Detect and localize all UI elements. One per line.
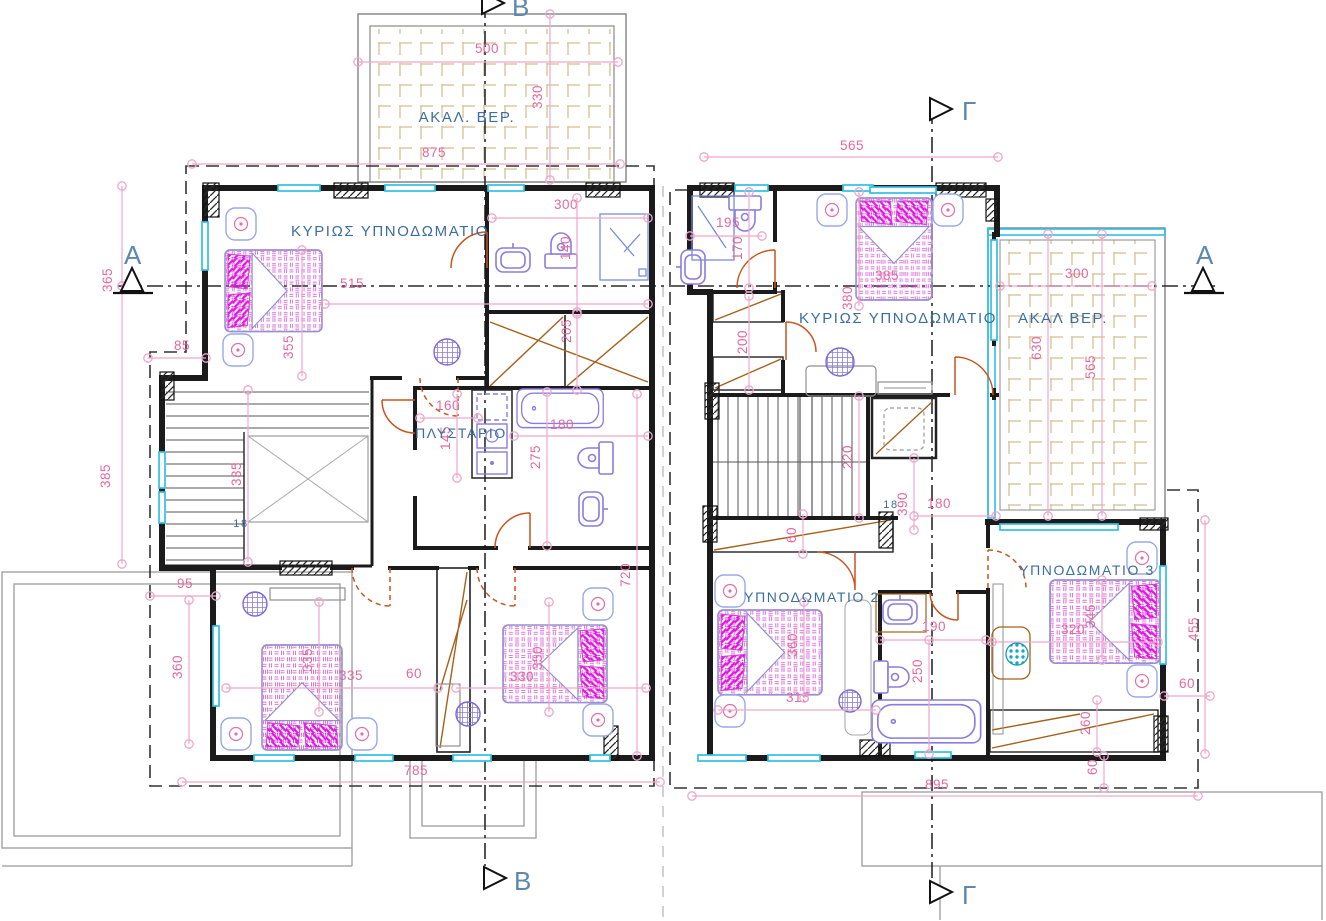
- dimension-label: 895: [925, 777, 949, 792]
- door-bedroom-southwest: [352, 568, 390, 606]
- section-letter: Γ: [962, 880, 976, 910]
- nightstand: [347, 718, 377, 750]
- section-marker-triangle: [930, 881, 952, 903]
- dimension-label: 260: [1078, 711, 1093, 735]
- section-marker-triangle: [121, 268, 143, 291]
- section-marker-triangle: [484, 867, 506, 889]
- dimension-label: 500: [475, 41, 499, 56]
- section-letter: A: [124, 240, 142, 270]
- dimension-label: 250: [910, 659, 925, 683]
- dimension-label: 355: [281, 335, 296, 359]
- room-label: ΚΥΡΙΩΣ ΥΠΝΟΔΩΜΑΤΙΟ: [291, 223, 489, 240]
- desk-chair-bedroom-southmid: [436, 684, 480, 746]
- dimension-label: 360: [170, 655, 185, 679]
- nightstand: [226, 208, 256, 240]
- section-letter: A: [1196, 240, 1214, 270]
- nightstand: [817, 194, 847, 226]
- door-bath-2-left: [495, 513, 530, 548]
- dimension-label: 300: [554, 197, 578, 212]
- floor-plan-screenshot: 5003308755655153553653858533530014020519…: [0, 0, 1326, 921]
- nightstand: [583, 588, 613, 620]
- sink: [579, 492, 608, 526]
- dimension-label: 630: [1029, 336, 1044, 360]
- nightstand: [223, 334, 253, 366]
- bed-master-left: [225, 250, 322, 332]
- dimension-label: 200: [735, 330, 750, 354]
- door-bath-2-right: [930, 592, 958, 620]
- desk-chair-master-right: [806, 348, 932, 396]
- nightstand: [1127, 665, 1157, 697]
- bed-master-right: [856, 198, 932, 300]
- door-bedroom-southmid: [477, 568, 515, 606]
- dimension-label: 330: [530, 85, 545, 109]
- room-label: 18: [233, 518, 248, 530]
- chair-bedroom-3: [992, 584, 1030, 734]
- dimension-label: 565: [840, 138, 864, 153]
- stair-void-room: [872, 398, 936, 458]
- dimension-label: 345: [1083, 604, 1098, 628]
- dimension-label: 220: [840, 445, 855, 469]
- dimension-label: 315: [786, 690, 810, 705]
- toilet: [578, 442, 613, 474]
- section-marker-triangle: [1192, 268, 1214, 291]
- dimension-label: 320: [1061, 622, 1085, 637]
- dimension-label: 190: [922, 619, 946, 634]
- dimension-label: 195: [716, 215, 740, 230]
- section-letter: B: [512, 0, 529, 22]
- floor-plan-canvas: 5003308755655153553653858533530014020519…: [0, 0, 1326, 921]
- section-marker-triangle: [482, 0, 504, 14]
- section-letter: B: [514, 866, 531, 896]
- dimension-label: 60: [1179, 676, 1195, 691]
- dimension-label: 85: [174, 338, 190, 353]
- nightstand: [715, 695, 745, 727]
- room-label: ΥΠΝΟΔΩΜΑΤΙΟ 3: [1019, 562, 1155, 578]
- dimension-label: 335: [339, 668, 363, 683]
- desk-chair-bedroom-southwest: [243, 588, 345, 616]
- bed-bedroom-2: [718, 610, 822, 695]
- toilet: [874, 661, 909, 693]
- bath-cabinet: [845, 600, 871, 735]
- dimension-label: 350: [530, 646, 545, 670]
- dimension-label: 720: [618, 563, 633, 587]
- nightstand: [933, 194, 963, 226]
- dimension-label: 300: [1065, 266, 1089, 281]
- dimension-label: 95: [177, 576, 193, 591]
- section-marker-triangle: [930, 98, 952, 120]
- dimension-label: 365: [100, 268, 115, 292]
- dimension-label: 140: [558, 236, 573, 260]
- dimension-label: 275: [528, 445, 543, 469]
- door-laundry: [382, 400, 415, 433]
- room-label: ΥΠΝΟΔΩΜΑΤΙΟ 2: [744, 589, 880, 605]
- dimension-label: 180: [550, 417, 574, 432]
- stairs-left-unit: [162, 378, 372, 566]
- plant: [434, 339, 460, 365]
- sink: [496, 243, 530, 272]
- room-label: ΚΥΡΙΩΣ ΥΠΝΟΔΩΜΑΤΙΟ: [799, 310, 997, 327]
- dimension-label: 60: [784, 527, 799, 543]
- dimension-label: 330: [510, 669, 534, 684]
- dimension-label: 60: [1085, 759, 1100, 775]
- dimension-label: 385: [875, 268, 899, 283]
- sink: [676, 250, 705, 284]
- dimension-label: 360: [785, 633, 800, 657]
- dimension-label: 875: [422, 145, 446, 160]
- door-closet-right: [786, 322, 816, 360]
- bathtub: [872, 700, 981, 743]
- room-label: 18: [883, 499, 898, 511]
- room-label: ΠΛΥΣΤΑΡΙΟ: [415, 425, 507, 441]
- veranda-top: [358, 14, 626, 182]
- section-letter: Γ: [962, 96, 976, 126]
- dimension-label: 60: [406, 666, 422, 681]
- dimension-label: 565: [1083, 355, 1098, 379]
- door-bedroom-2: [817, 552, 855, 590]
- sink: [883, 595, 917, 624]
- nightstand: [221, 718, 251, 750]
- dimension-label: 335: [300, 648, 315, 672]
- nightstand: [583, 704, 613, 736]
- dimension-label: 385: [98, 464, 113, 488]
- bed-bedroom-southmid: [503, 625, 607, 703]
- dimension-label: 455: [1186, 617, 1201, 641]
- dimension-label: 205: [559, 319, 574, 343]
- dimension-label: 785: [404, 763, 428, 778]
- shower: [600, 214, 648, 280]
- dimension-label: 380: [840, 286, 855, 310]
- plant: [839, 690, 861, 712]
- room-label: ΑΚΑΛ. ΒΕΡ.: [419, 109, 516, 126]
- dimension-label: 180: [927, 496, 951, 511]
- dimension-label: 335: [229, 462, 244, 486]
- nightstand: [715, 575, 745, 607]
- room-label: ΑΚΑΛ ΒΕΡ.: [1018, 310, 1108, 327]
- dimension-label: 170: [730, 236, 745, 260]
- dimension-label: 515: [340, 276, 364, 291]
